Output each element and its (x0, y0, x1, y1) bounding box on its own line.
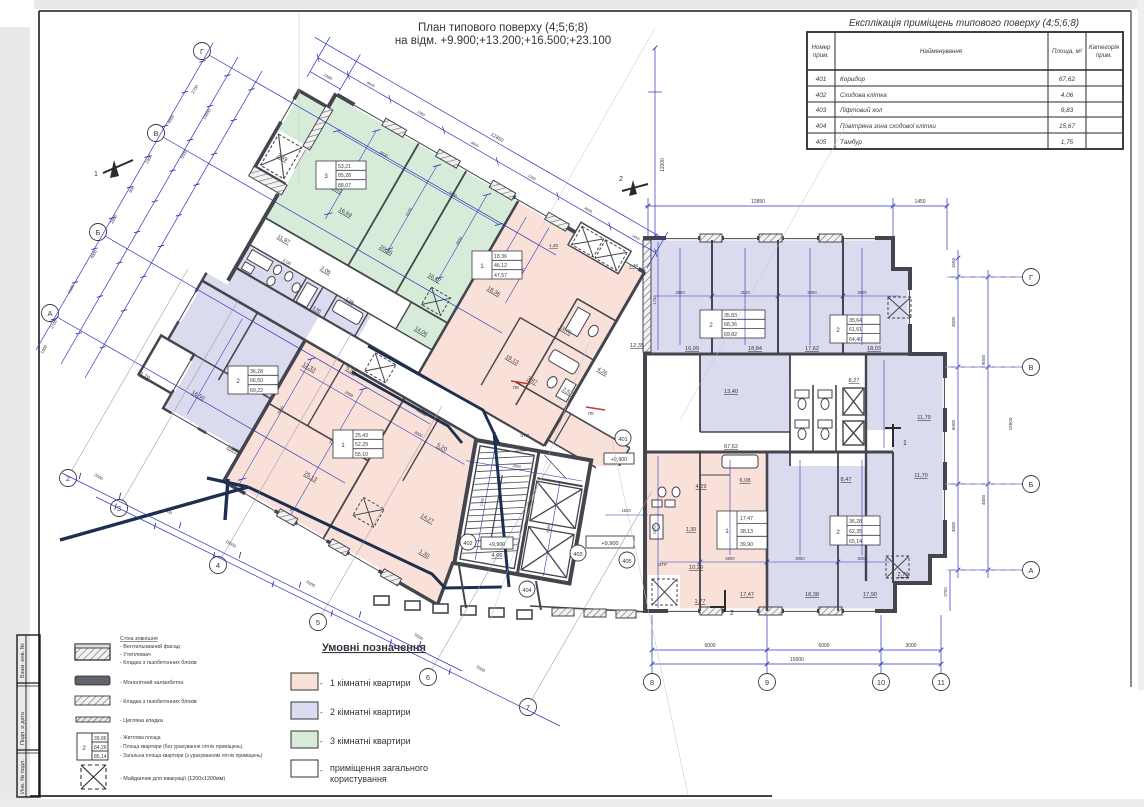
svg-text:1: 1 (725, 528, 729, 535)
svg-text:Стіна зовнішня: Стіна зовнішня (120, 636, 158, 642)
svg-text:Умовні позначення: Умовні позначення (322, 642, 426, 654)
svg-text:користування: користування (330, 774, 387, 784)
svg-text:1450: 1450 (914, 199, 925, 205)
svg-text:9,83: 9,83 (1061, 107, 1074, 114)
svg-text:2,79: 2,79 (898, 572, 909, 578)
svg-text:17,90: 17,90 (863, 592, 877, 598)
svg-text:3: 3 (324, 173, 328, 180)
svg-text:2900: 2900 (807, 290, 817, 295)
svg-text:Ліфтовий хол: Ліфтовий хол (839, 106, 883, 114)
svg-text:12850: 12850 (751, 199, 765, 205)
svg-text:11900: 11900 (660, 158, 666, 172)
svg-text:ЭТР: ЭТР (658, 562, 667, 567)
svg-text:405: 405 (622, 559, 631, 565)
svg-text:67,62: 67,62 (1059, 76, 1075, 83)
svg-text:Сходова клітка: Сходова клітка (840, 91, 887, 99)
svg-text:3070: 3070 (652, 525, 657, 535)
svg-text:18,03: 18,03 (867, 346, 881, 352)
svg-text:План типового поверху (4;5;6;8: План типового поверху (4;5;6;8) (418, 22, 588, 34)
svg-text:Найменування: Найменування (920, 48, 963, 55)
svg-text:2: 2 (730, 610, 734, 617)
svg-text:Повітряна зона сходової клітки: Повітряна зона сходової клітки (840, 122, 936, 130)
svg-text:403: 403 (816, 107, 827, 114)
svg-text:4,29: 4,29 (696, 484, 707, 490)
svg-text:1,45: 1,45 (549, 243, 558, 248)
svg-text:-: - (320, 708, 323, 717)
svg-text:35,83: 35,83 (724, 313, 737, 319)
svg-text:Г: Г (1029, 273, 1033, 282)
svg-text:11: 11 (937, 678, 945, 687)
svg-text:10: 10 (877, 678, 885, 687)
svg-text:Експлікація приміщень типового: Експлікація приміщень типового поверху (… (849, 18, 1079, 29)
svg-text:35,64: 35,64 (849, 318, 862, 324)
svg-text:- Кладка з газобетонних блоків: - Кладка з газобетонних блоків (120, 699, 197, 705)
svg-text:1: 1 (94, 171, 98, 178)
svg-text:- Площа квартири (без урахуван: - Площа квартири (без урахування літніх … (120, 744, 243, 750)
svg-text:Подп. и дата: Подп. и дата (20, 711, 26, 745)
svg-text:2 кімнатні квартири: 2 кімнатні квартири (330, 707, 411, 717)
svg-text:39,90: 39,90 (740, 542, 753, 548)
svg-text:36,28: 36,28 (250, 369, 263, 375)
svg-text:36,28: 36,28 (849, 519, 862, 525)
svg-text:9: 9 (765, 678, 769, 687)
svg-text:18,38: 18,38 (805, 592, 819, 598)
svg-text:-: - (320, 766, 323, 775)
svg-text:1,75: 1,75 (1061, 139, 1074, 146)
svg-text:15000: 15000 (790, 657, 804, 663)
svg-text:88,07: 88,07 (338, 183, 351, 189)
svg-text:2: 2 (82, 745, 86, 752)
svg-text:11,70: 11,70 (914, 473, 928, 479)
svg-text:В: В (1028, 363, 1033, 372)
svg-text:В: В (153, 129, 158, 138)
svg-text:-: - (320, 679, 323, 688)
svg-text:А: А (1028, 566, 1033, 575)
svg-text:12,35: 12,35 (630, 343, 644, 349)
svg-text:4800: 4800 (951, 521, 956, 532)
svg-text:25,43: 25,43 (355, 433, 368, 439)
svg-text:1,46: 1,46 (629, 263, 638, 268)
svg-text:ПК: ПК (513, 385, 519, 390)
svg-text:46,12: 46,12 (494, 263, 507, 269)
svg-text:Номер: Номер (811, 44, 831, 51)
svg-text:55,10: 55,10 (355, 452, 368, 458)
svg-text:Тамбур: Тамбур (840, 138, 862, 146)
svg-text:2: 2 (836, 529, 840, 536)
svg-text:69,82: 69,82 (724, 332, 737, 338)
svg-text:67,62: 67,62 (724, 444, 738, 450)
svg-text:403: 403 (573, 552, 582, 558)
svg-text:1: 1 (903, 440, 907, 447)
svg-text:404: 404 (522, 588, 531, 594)
svg-text:4800: 4800 (951, 316, 956, 327)
svg-text:52,29: 52,29 (355, 442, 368, 448)
svg-text:4,06: 4,06 (1061, 92, 1074, 99)
svg-text:3 кімнатні квартири: 3 кімнатні квартири (330, 736, 411, 746)
svg-text:402: 402 (816, 92, 827, 99)
svg-text:39,86: 39,86 (94, 736, 107, 742)
svg-text:5: 5 (316, 618, 320, 627)
svg-text:9000: 9000 (981, 354, 986, 365)
svg-text:38,13: 38,13 (740, 529, 753, 535)
svg-text:8: 8 (650, 678, 654, 687)
svg-text:1550: 1550 (951, 257, 956, 268)
svg-text:на відм. +9.900;+13.200;+16.50: на відм. +9.900;+13.200;+16.500;+23.100 (395, 35, 611, 47)
svg-text:2700: 2700 (943, 587, 948, 597)
svg-text:8,27: 8,27 (849, 378, 860, 384)
svg-text:1: 1 (480, 263, 484, 270)
svg-text:85,28: 85,28 (338, 173, 351, 179)
svg-text:53,21: 53,21 (338, 164, 351, 170)
svg-text:6,08: 6,08 (740, 478, 751, 484)
svg-text:Коридор: Коридор (840, 75, 866, 83)
svg-text:66,50: 66,50 (250, 378, 263, 384)
svg-text:6000: 6000 (704, 643, 715, 649)
svg-text:3000: 3000 (857, 556, 867, 561)
svg-text:8,47: 8,47 (841, 477, 852, 483)
svg-text:18,36: 18,36 (494, 254, 507, 260)
svg-text:401: 401 (618, 437, 627, 443)
svg-text:- Утеплювач: - Утеплювач (120, 652, 151, 658)
svg-text:65,14: 65,14 (849, 539, 862, 545)
svg-text:402: 402 (463, 541, 472, 547)
svg-text:1 кімнатні квартири: 1 кімнатні квартири (330, 678, 411, 688)
svg-text:4800: 4800 (981, 494, 986, 505)
svg-text:13,40: 13,40 (724, 389, 738, 395)
svg-text:+9,900: +9,900 (489, 542, 506, 548)
svg-text:10,29: 10,29 (689, 565, 703, 571)
svg-text:А: А (47, 309, 52, 318)
svg-text:- Цегляна кладка: - Цегляна кладка (120, 718, 163, 724)
svg-text:-: - (320, 737, 323, 746)
svg-text:2: 2 (236, 378, 240, 385)
svg-text:17,47: 17,47 (740, 592, 754, 598)
svg-text:3050: 3050 (795, 556, 805, 561)
svg-text:1: 1 (341, 442, 345, 449)
svg-text:6000: 6000 (818, 643, 829, 649)
svg-text:68,36: 68,36 (724, 322, 737, 328)
svg-text:2900: 2900 (725, 556, 735, 561)
svg-text:1550: 1550 (621, 508, 631, 513)
svg-text:2850: 2850 (675, 290, 685, 295)
svg-text:62,35: 62,35 (849, 529, 862, 535)
svg-text:85,14: 85,14 (94, 754, 107, 760)
svg-text:6000: 6000 (951, 419, 956, 430)
svg-text:6: 6 (426, 673, 430, 682)
svg-text:405: 405 (816, 139, 827, 146)
svg-text:3100: 3100 (740, 290, 750, 295)
svg-text:- Загальна площа квартири (з у: - Загальна площа квартири (з урахуванням… (120, 753, 263, 759)
svg-text:84,26: 84,26 (94, 745, 107, 751)
svg-text:Г: Г (200, 47, 204, 56)
svg-text:- Майданчик для евакуації (120: - Майданчик для евакуації (1200х1200мм) (120, 775, 225, 782)
svg-text:- Житлова площа: - Житлова площа (120, 735, 161, 741)
svg-text:15,67: 15,67 (1059, 123, 1075, 130)
svg-text:1,77: 1,77 (695, 599, 706, 605)
svg-text:15600: 15600 (1008, 417, 1013, 430)
svg-text:прим.: прим. (1096, 52, 1112, 59)
svg-text:- Монолітний залізобетон: - Монолітний залізобетон (120, 679, 183, 686)
svg-text:3000: 3000 (905, 643, 916, 649)
svg-text:2900: 2900 (857, 290, 867, 295)
svg-text:Инв. № подл.: Инв. № подл. (20, 759, 26, 794)
svg-text:прим.: прим. (813, 52, 829, 59)
svg-text:17,47: 17,47 (740, 516, 753, 522)
svg-text:ЭТР: ЭТР (520, 433, 529, 438)
svg-text:приміщення загального: приміщення загального (330, 763, 428, 773)
svg-text:Взам. инв. №: Взам. инв. № (20, 643, 26, 678)
svg-text:- Кладка з газобетонних блоків: - Кладка з газобетонних блоків (120, 660, 197, 666)
svg-text:2: 2 (836, 327, 840, 334)
svg-text:404: 404 (816, 123, 827, 130)
svg-text:61,61: 61,61 (849, 327, 862, 333)
svg-text:Б: Б (96, 228, 101, 237)
svg-text:Б: Б (1029, 480, 1034, 489)
svg-text:16,99: 16,99 (685, 346, 699, 352)
svg-text:401: 401 (816, 76, 827, 83)
svg-text:- Вентильований фасад: - Вентильований фасад (120, 643, 181, 650)
svg-text:2: 2 (709, 322, 713, 329)
svg-text:Категорія: Категорія (1089, 44, 1120, 51)
svg-text:1,30: 1,30 (686, 527, 696, 533)
svg-text:Площа, м²: Площа, м² (1052, 48, 1083, 55)
svg-text:11,79: 11,79 (917, 415, 931, 421)
svg-text:+9,900: +9,900 (601, 541, 618, 547)
svg-text:+9,900: +9,900 (611, 457, 627, 463)
svg-text:64,40: 64,40 (849, 337, 862, 343)
svg-text:47,57: 47,57 (494, 273, 507, 279)
svg-text:4: 4 (216, 561, 220, 570)
svg-text:2: 2 (619, 176, 623, 183)
svg-text:17,62: 17,62 (805, 346, 819, 352)
svg-text:ПК: ПК (588, 411, 594, 416)
svg-text:18,84: 18,84 (748, 346, 762, 352)
svg-text:69,22: 69,22 (250, 388, 263, 394)
